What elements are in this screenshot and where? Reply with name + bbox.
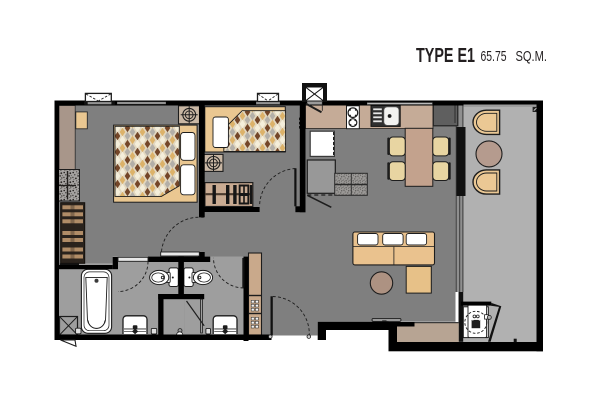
svg-text:SQ.M.: SQ.M.	[516, 48, 548, 65]
svg-text:TYPE E1: TYPE E1	[416, 45, 475, 67]
svg-text:65.75: 65.75	[481, 48, 507, 65]
